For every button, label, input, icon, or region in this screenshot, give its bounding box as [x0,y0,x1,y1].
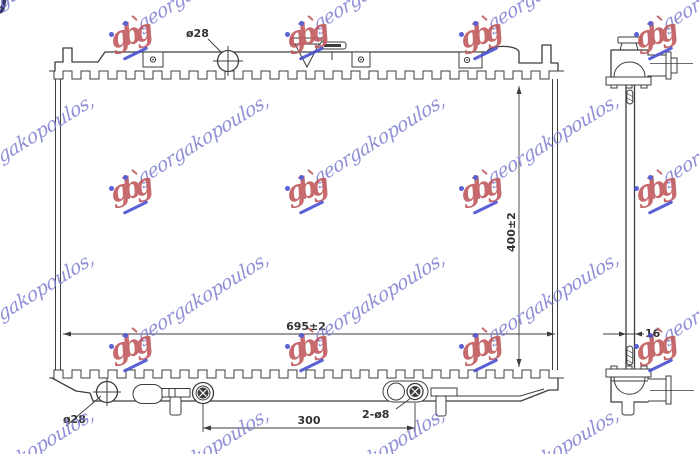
drain-plug [93,378,121,406]
mount-pin-left [193,383,214,404]
core-width-label: 695±2 [286,320,326,333]
filler-cap [213,46,243,76]
core-thickness-label: 16 [645,327,661,340]
front-view [49,38,564,416]
core-bottom-serration [49,370,564,378]
top-bracket-middle [352,52,370,67]
technical-drawing: 695±2 400±2 ø28 ø28 300 2-ø8 16 [0,0,700,454]
bottom-tank-outline [52,378,558,401]
bottom-bracket [431,388,457,416]
side-core [626,85,635,369]
filler-cap-label: ø28 [186,27,209,40]
side-view [606,37,694,415]
pin-spacing-label: 300 [298,414,321,427]
side-bottom-tank [606,366,694,415]
pin-holes-label: 2-ø8 [362,408,389,421]
mount-pin-right [383,381,428,402]
cooler-pipe [162,389,190,416]
top-bracket-left [143,52,163,67]
core-top-serration [49,71,564,79]
oil-cooler-oval [133,385,163,404]
core-height-label: 400±2 [505,212,518,252]
side-top-tank [606,37,693,88]
drain-plug-label: ø28 [63,413,86,426]
top-bracket-right [459,52,482,68]
screenshot: 695±2 400±2 ø28 ø28 300 2-ø8 16 [0,0,700,454]
